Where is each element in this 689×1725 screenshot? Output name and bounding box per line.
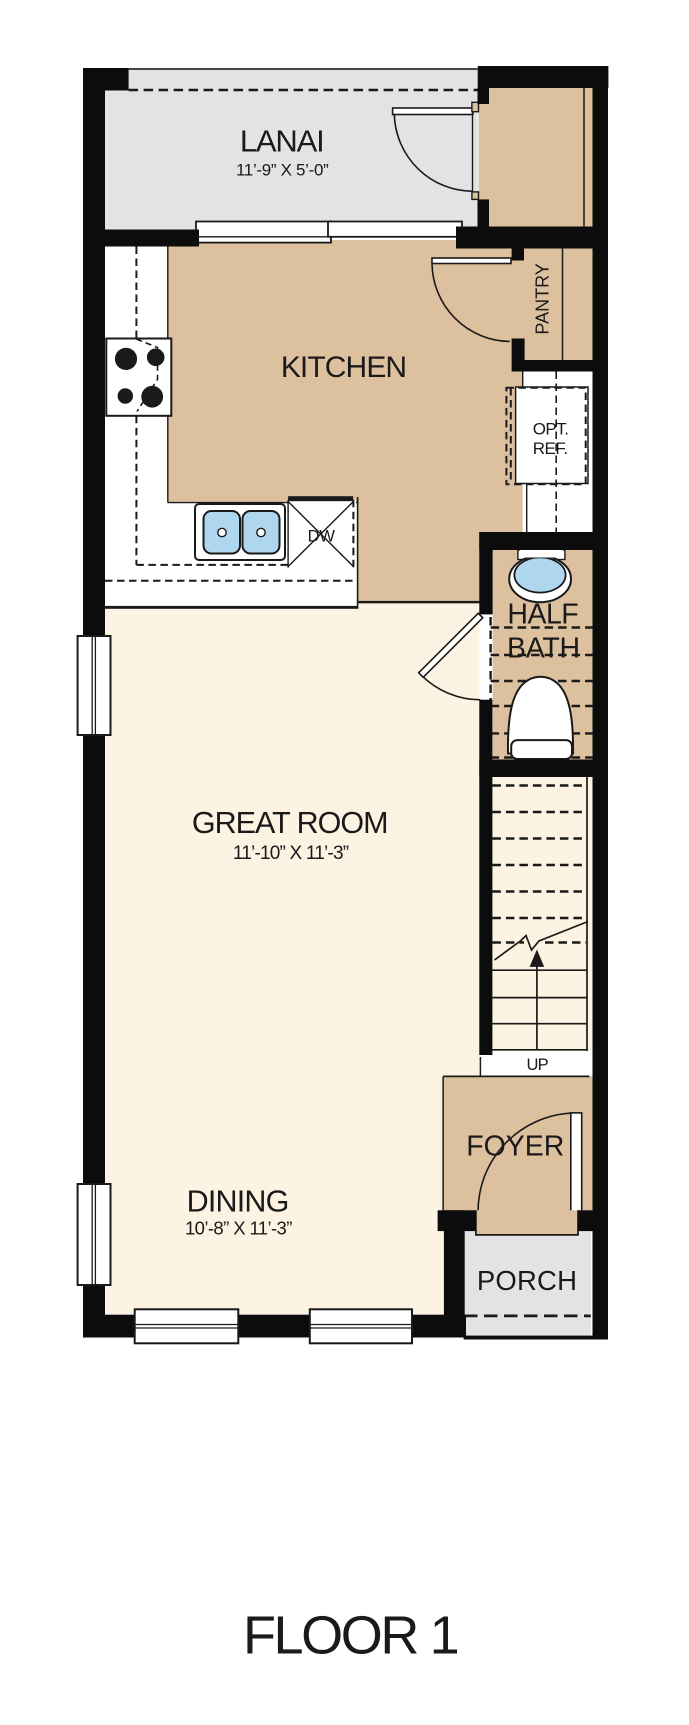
svg-text:BATH: BATH [507, 632, 580, 664]
svg-text:DINING: DINING [187, 1185, 289, 1219]
svg-text:FLOOR 1: FLOOR 1 [243, 1605, 458, 1665]
svg-text:KITCHEN: KITCHEN [281, 351, 406, 384]
svg-text:FOYER: FOYER [466, 1131, 564, 1163]
svg-text:GREAT ROOM: GREAT ROOM [192, 806, 388, 840]
svg-text:DW: DW [308, 528, 336, 546]
svg-text:UP: UP [527, 1056, 549, 1074]
svg-text:PORCH: PORCH [477, 1265, 577, 1296]
svg-text:11’-10” X 11’-3”: 11’-10” X 11’-3” [233, 843, 349, 864]
svg-text:PANTRY: PANTRY [532, 263, 552, 334]
svg-text:HALF: HALF [507, 599, 578, 631]
svg-text:REF.: REF. [533, 439, 568, 458]
svg-text:10’-8” X 11’-3”: 10’-8” X 11’-3” [185, 1218, 292, 1239]
svg-text:LANAI: LANAI [240, 124, 324, 159]
svg-text:OPT.: OPT. [533, 420, 569, 439]
svg-text:11’-9” X 5’-0”: 11’-9” X 5’-0” [236, 160, 329, 179]
